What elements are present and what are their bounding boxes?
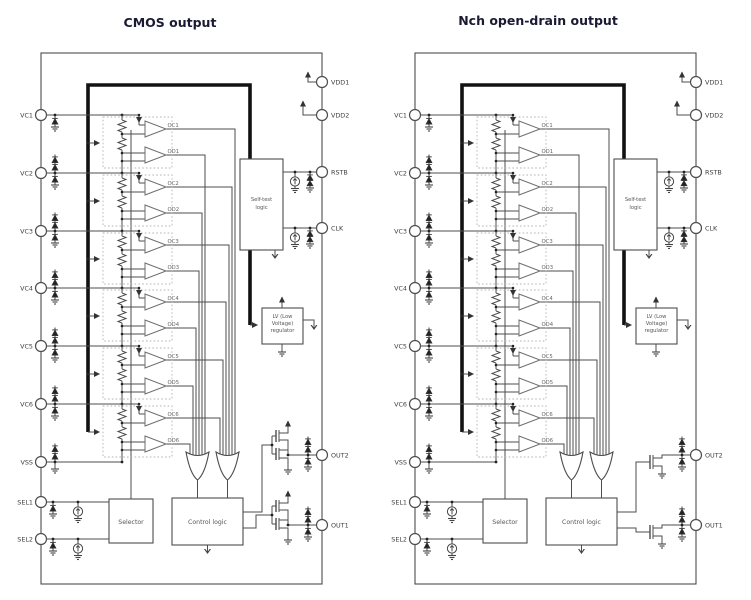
right-diagram-title: Nch open-drain output <box>458 13 618 28</box>
block-diagram-figure: OC1 OD1 OC2 OD2 OC3 OD3 OC4 OD4 OC5 OD5 … <box>0 0 751 600</box>
circuit-diagrams: OC1 OD1 OC2 OD2 OC3 OD3 OC4 OD4 OC5 OD5 … <box>0 0 751 600</box>
cmos-diagram <box>17 53 349 584</box>
cmos-diagram-core <box>17 53 349 584</box>
left-diagram-title: CMOS output <box>124 15 217 30</box>
nch-diagram <box>391 53 723 584</box>
nch-diagram-core <box>391 53 723 584</box>
